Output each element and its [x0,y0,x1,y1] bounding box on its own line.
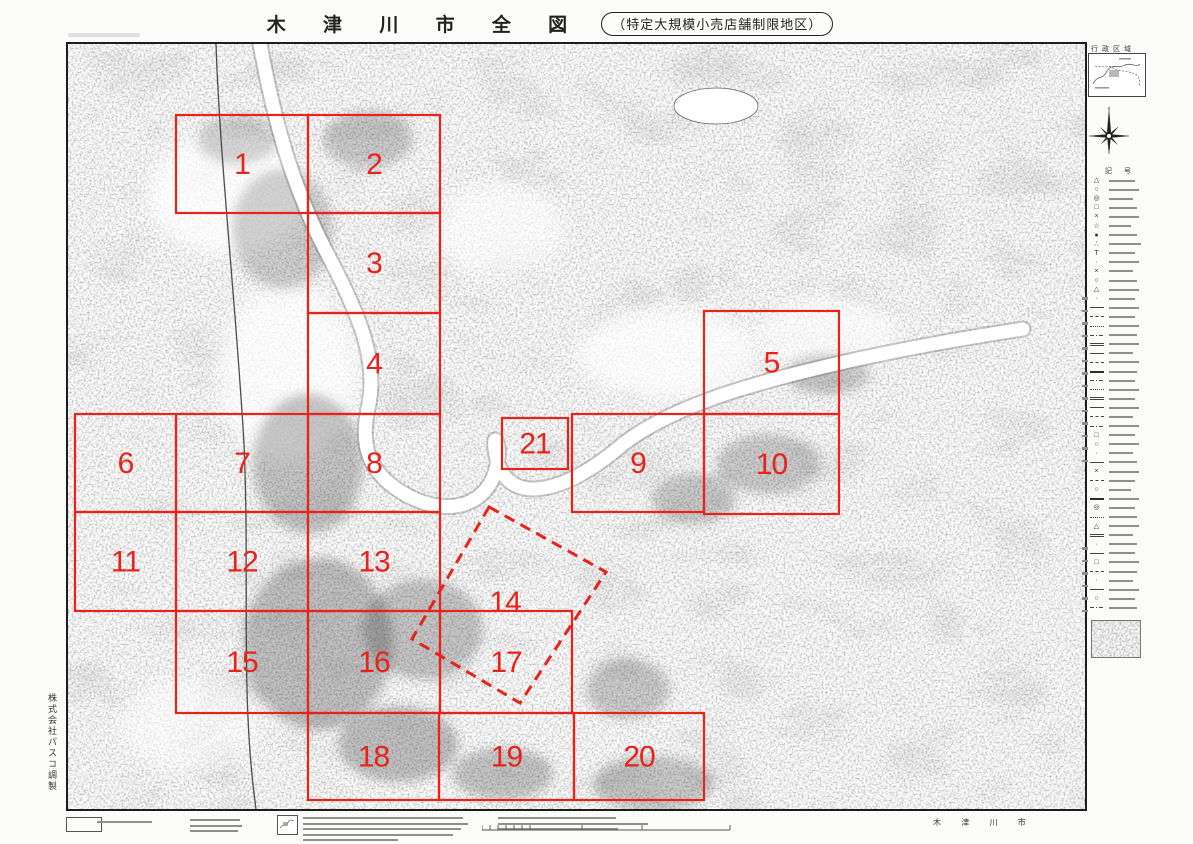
micro-text-bar [1082,397,1088,400]
legend-label-bar [1109,334,1137,336]
legend-symbol-icon [1089,307,1104,308]
legend-label-bar [1109,198,1133,200]
legend-side-note [1082,547,1088,622]
legend-label-bar [1109,589,1139,591]
legend-label-bar [1109,371,1137,373]
legend-label-bar [1109,389,1139,391]
legend-row: × [1089,212,1153,221]
note-line [303,839,398,841]
legend-row: × [1089,467,1153,476]
legend-row: △ [1089,522,1153,531]
region-number-2: 2 [366,148,382,181]
legend-row: □ [1089,203,1153,212]
legend-row [1089,476,1153,485]
legend-symbol-icon: T [1089,250,1104,257]
legend-title: 記 号 [1105,166,1136,176]
micro-text-bar [1082,422,1088,425]
legend-label-bar [1109,416,1133,418]
legend-symbol-icon [1089,380,1104,381]
legend-label-bar [1109,534,1133,536]
micro-text-bar [1082,347,1088,350]
micro-text-bar [1082,585,1088,588]
legend-row [1089,340,1153,349]
notes-block [97,821,152,827]
legend-label-bar [1109,325,1139,327]
legend-row [1089,549,1153,558]
legend-row [1089,422,1153,431]
region-number-6: 6 [118,447,134,480]
legend-symbol-icon: ○ [1089,277,1104,284]
legend-row: ● [1089,231,1153,240]
legend-symbol-icon: ☆ [1089,223,1104,230]
legend-row: △ [1089,285,1153,294]
note-line [190,830,238,832]
region-number-10: 10 [756,448,788,481]
legend-symbol-icon [1089,607,1104,608]
legend-symbol-icon: ◎ [1089,504,1104,511]
legend-row [1089,312,1153,321]
inset-map-drawing [1089,54,1143,94]
legend-row: ∴ [1089,240,1153,249]
legend-symbol-icon [1089,343,1104,346]
legend-label-bar [1109,243,1141,245]
legend-symbol-icon [1089,362,1104,363]
micro-text-bar [1082,360,1088,363]
legend-label-bar [1109,234,1137,236]
legend-symbol-icon: □ [1089,432,1104,439]
region-number-17: 17 [490,646,522,679]
legend-row: ○ [1089,185,1153,194]
legend-symbol-icon: □ [1089,559,1104,566]
legend-row [1089,585,1153,594]
legend-row: △ [1089,176,1153,185]
legend-row [1089,322,1153,331]
legend-label-bar [1109,307,1139,309]
legend: △○◎□×☆●∴T·×○△·□○·×○◎△·□·○ [1089,176,1153,613]
legend-row [1089,458,1153,467]
legend-row [1089,403,1153,412]
legend-symbol-icon [1089,316,1104,317]
legend-label-bar [1109,425,1139,427]
legend-label-bar [1109,225,1131,227]
legend-label-bar [1109,525,1139,527]
legend-label-bar [1109,471,1139,473]
legend-symbol-icon [1089,498,1104,500]
legend-symbol-icon [1089,589,1104,590]
producer-credit: 株式会社パスコ調製 [46,693,59,803]
map-frame: 123456789101112131516171819202114 [66,42,1087,811]
region-number-4: 4 [366,348,382,381]
region-number-7: 7 [234,447,250,480]
legend-row: ◎ [1089,194,1153,203]
legend-row: × [1089,267,1153,276]
notes-block [190,819,242,836]
legend-label-bar [1109,516,1137,518]
legend-label-bar [1109,207,1137,209]
region-number-9: 9 [630,447,646,480]
legend-row: · [1089,576,1153,585]
note-line [190,819,240,821]
legend-label-bar [1109,352,1133,354]
legend-label-bar [1109,571,1137,573]
legend-row [1089,349,1153,358]
note-line [303,834,453,836]
legend-symbol-icon [1089,326,1104,327]
legend-row: ☆ [1089,221,1153,230]
legend-label-bar [1109,452,1133,454]
legend-label-bar [1109,298,1135,300]
compass-rose-icon [1086,106,1132,164]
micro-text-bar [1082,560,1088,563]
legend-label-bar [1109,607,1137,609]
legend-label-bar [1109,270,1133,272]
legend-label-bar [1109,407,1139,409]
legend-symbol-icon: △ [1089,286,1104,293]
note-line [303,828,461,830]
map-sheet-page: 木 津 川 市 全 図 （特定大規模小売店舗制限地区） [0,0,1193,844]
legend-label-bar [1109,543,1137,545]
region-number-3: 3 [366,247,382,280]
legend-label-bar [1109,316,1135,318]
legend-symbol-icon [1089,407,1104,408]
micro-text-bar [1082,547,1088,550]
micro-text-bar [1082,447,1088,450]
legend-row: ○ [1089,440,1153,449]
region-number-20: 20 [623,741,655,774]
legend-row [1089,512,1153,521]
legend-symbol-icon: · [1089,450,1104,457]
micro-text-bar [1082,610,1088,613]
legend-symbol-icon: · [1089,541,1104,548]
inset-map [1088,53,1146,97]
legend-label-bar [1109,507,1135,509]
legend-symbol-icon: ○ [1089,595,1104,602]
legend-side-note [1082,297,1088,472]
note-line [303,823,468,825]
legend-label-bar [1109,343,1139,345]
region-number-19: 19 [491,741,523,774]
legend-symbol-icon: × [1089,213,1104,220]
legend-symbol-icon: · [1089,259,1104,266]
legend-symbol-icon: · [1089,577,1104,584]
micro-text-bar [1082,385,1088,388]
legend-symbol-icon: ○ [1089,441,1104,448]
key-map-icon [277,815,298,835]
micro-text-bar [1082,435,1088,438]
legend-row: ○ [1089,276,1153,285]
legend-symbol-icon: ● [1089,232,1104,239]
legend-row [1089,412,1153,421]
micro-text-bar [1082,322,1088,325]
legend-row: ○ [1089,594,1153,603]
legend-label-bar [1109,489,1131,491]
fine-print [68,33,140,37]
legend-row: T [1089,249,1153,258]
notes-block [303,817,468,844]
region-number-13: 13 [358,546,390,579]
legend-label-bar [1109,380,1135,382]
legend-row: · [1089,258,1153,267]
legend-label-bar [1109,189,1139,191]
legend-symbol-icon: ∴ [1089,241,1104,248]
micro-text-bar [1082,372,1088,375]
legend-symbol-icon: × [1089,268,1104,275]
page-title: 木 津 川 市 全 図 [267,10,583,37]
legend-label-bar [1109,580,1133,582]
note-line [190,825,242,827]
legend-symbol-icon: △ [1089,177,1104,184]
legend-label-bar [1109,252,1135,254]
micro-text-bar [1082,460,1088,463]
legend-label-bar [1109,280,1137,282]
city-name: 木 津 川 市 [933,817,1035,828]
legend-label-bar [1109,434,1135,436]
region-number-14: 14 [489,586,521,619]
region-number-5: 5 [764,347,780,380]
legend-symbol-icon [1089,416,1104,417]
legend-symbol-icon [1089,517,1104,518]
legend-row: ◎ [1089,503,1153,512]
legend-symbol-icon: × [1089,468,1104,475]
legend-symbol-icon [1089,353,1104,354]
micro-text-bar [1082,335,1088,338]
legend-symbol-icon [1089,371,1104,373]
legend-symbol-icon [1089,480,1104,481]
header: 木 津 川 市 全 図 （特定大規模小売店舗制限地区） [0,10,1100,37]
legend-row [1089,531,1153,540]
legend-symbol-icon [1089,553,1104,554]
legend-label-bar [1109,361,1139,363]
micro-text-bar [1082,597,1088,600]
legend-label-bar [1109,598,1135,600]
legend-symbol-icon [1089,426,1104,427]
legend-label-bar [1109,443,1139,445]
micro-text-bar [1082,410,1088,413]
legend-symbol-icon: ○ [1089,186,1104,193]
legend-symbol-icon [1089,462,1104,463]
legend-label-bar [1109,180,1135,182]
legend-label-bar [1109,561,1139,563]
legend-row: ○ [1089,485,1153,494]
region-number-11: 11 [111,546,140,579]
note-line [498,817,616,819]
micro-text-bar [1082,572,1088,575]
legend-symbol-icon [1089,534,1104,537]
legend-row [1089,358,1153,367]
legend-symbol-icon [1089,397,1104,400]
scale-bar [482,821,734,835]
legend-row [1089,367,1153,376]
legend-symbol-icon: · [1089,295,1104,302]
region-number-16: 16 [358,646,390,679]
legend-symbol-icon: □ [1089,204,1104,211]
region-number-21: 21 [519,428,551,461]
vegetation-sample [1091,620,1141,658]
legend-symbol-icon [1089,389,1104,390]
legend-symbol-icon: ◎ [1089,195,1104,202]
page-subtitle: （特定大規模小売店舗制限地区） [601,12,833,36]
legend-row [1089,331,1153,340]
legend-row: □ [1089,558,1153,567]
legend-row [1089,303,1153,312]
region-number-18: 18 [358,741,390,774]
legend-label-bar [1109,461,1137,463]
legend-row: · [1089,540,1153,549]
legend-label-bar [1109,289,1139,291]
legend-row [1089,376,1153,385]
legend-label-bar [1109,398,1135,400]
legend-row [1089,385,1153,394]
note-line [303,817,463,819]
legend-row: · [1089,449,1153,458]
legend-label-bar [1109,480,1135,482]
legend-row [1089,394,1153,403]
footer: 木 津 川 市 [66,813,1116,844]
legend-row [1089,494,1153,503]
legend-symbol-icon [1089,335,1104,336]
legend-label-bar [1109,498,1139,500]
legend-symbol-icon [1089,571,1104,572]
legend-label-bar [1109,552,1135,554]
legend-symbol-icon: ○ [1089,486,1104,493]
legend-row: · [1089,294,1153,303]
note-line [97,821,152,823]
legend-row: □ [1089,431,1153,440]
legend-row [1089,567,1153,576]
region-number-1: 1 [234,148,250,181]
region-number-15: 15 [226,646,258,679]
district-overlay: 123456789101112131516171819202114 [68,44,1085,809]
legend-label-bar [1109,216,1139,218]
legend-row [1089,603,1153,612]
legend-symbol-icon: △ [1089,523,1104,530]
micro-text-bar [1082,297,1088,300]
region-number-8: 8 [366,447,382,480]
region-number-12: 12 [226,546,258,579]
legend-label-bar [1109,261,1139,263]
micro-text-bar [1082,310,1088,313]
